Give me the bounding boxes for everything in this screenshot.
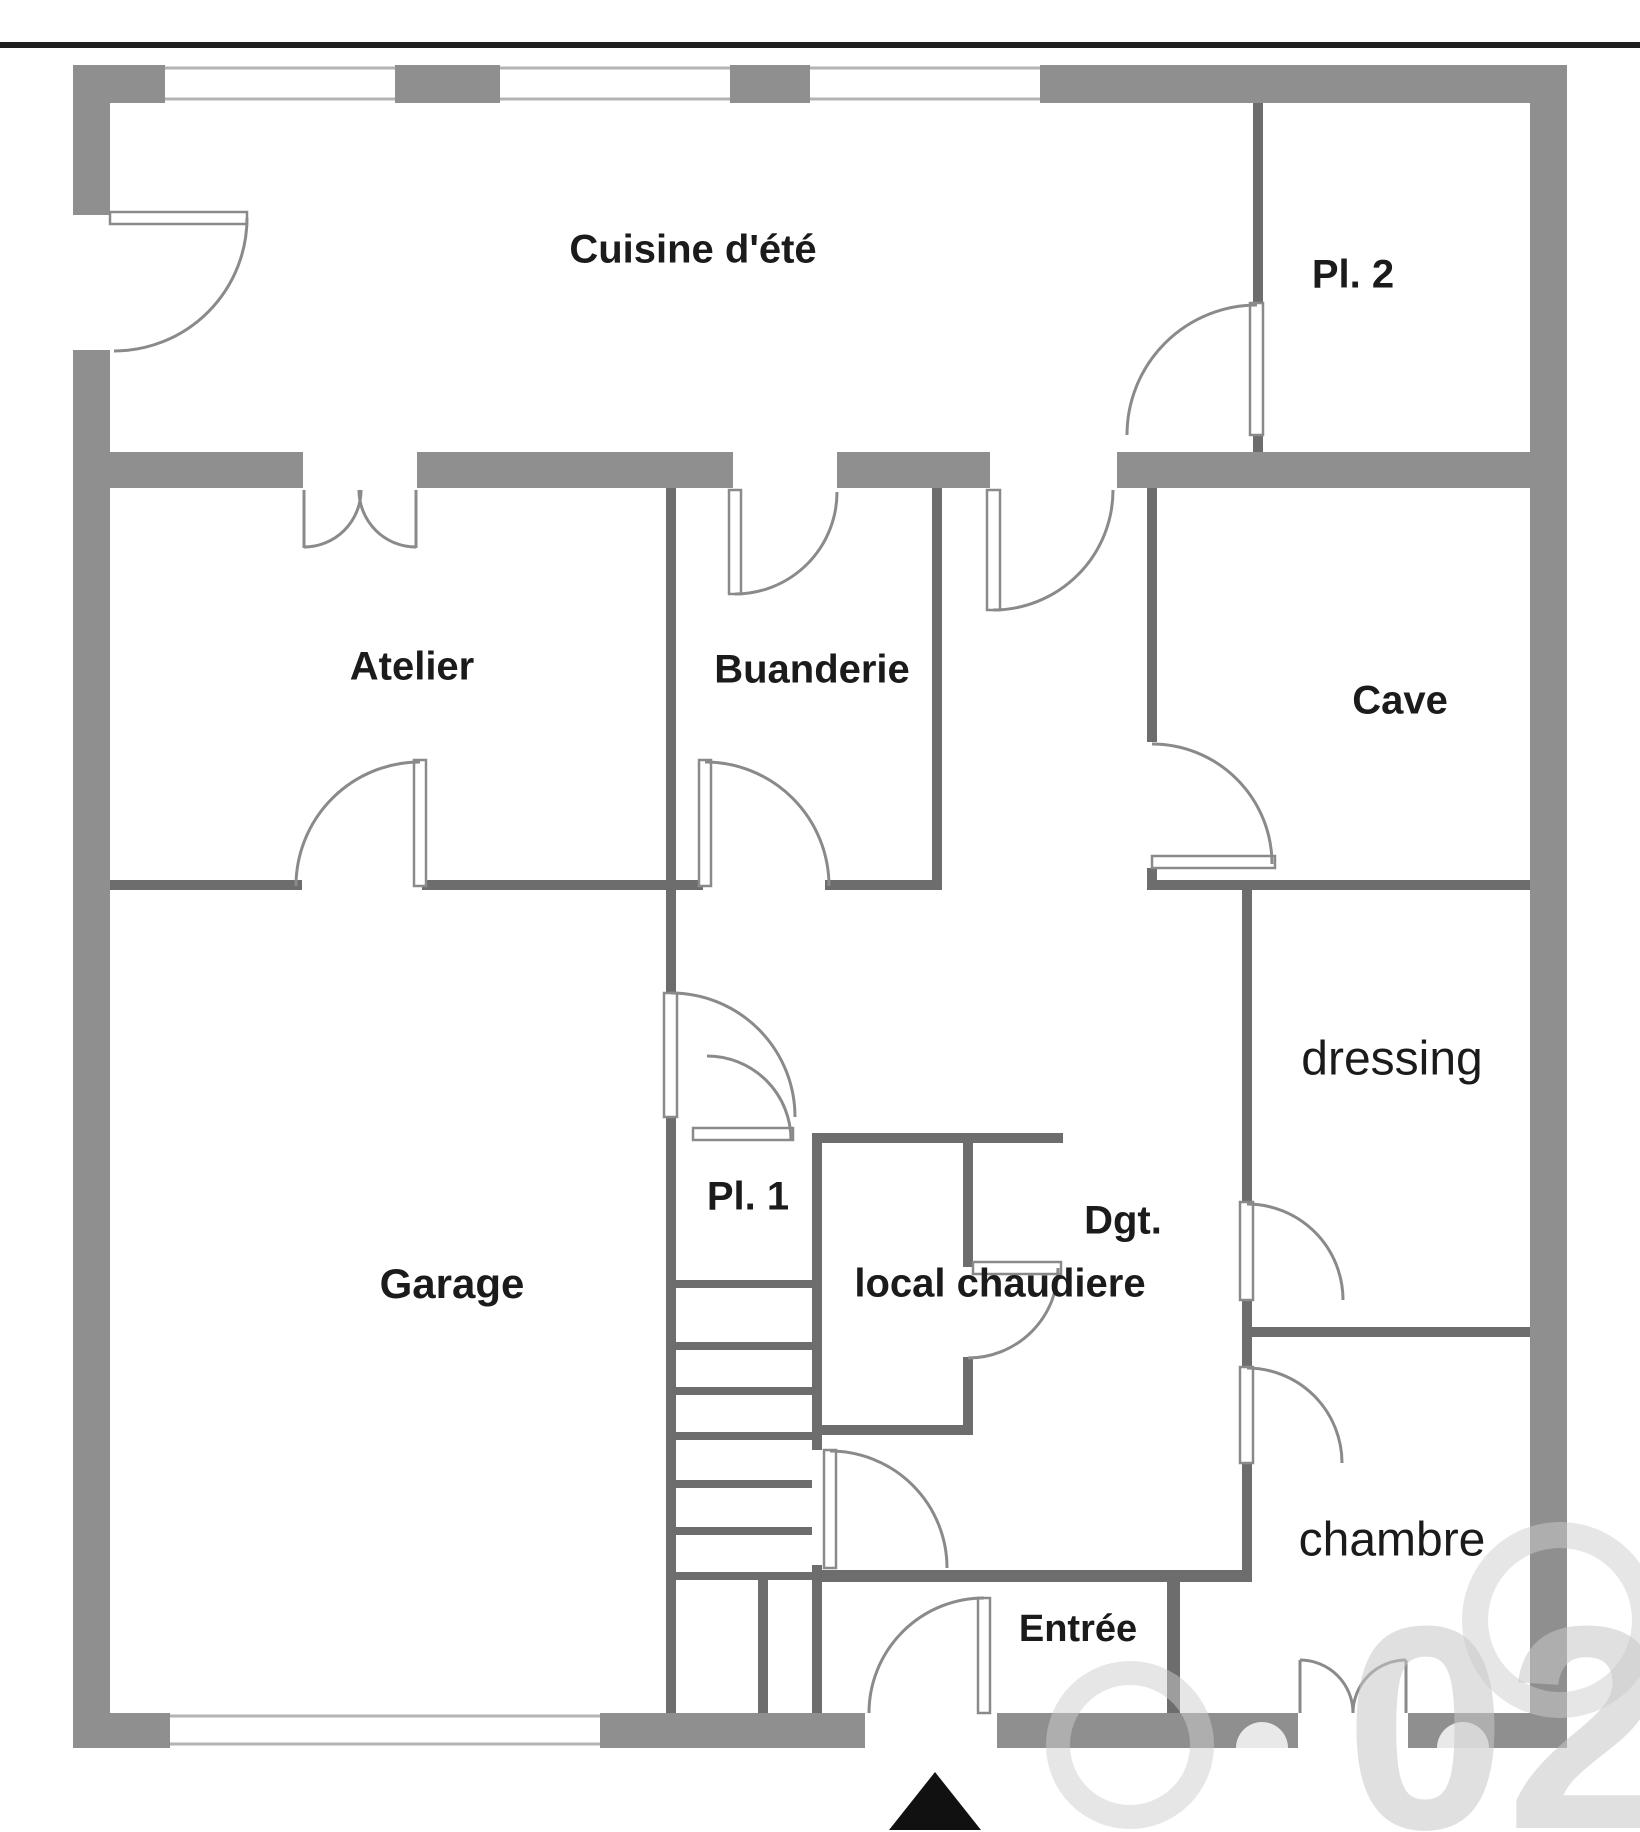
wall bbox=[417, 452, 733, 488]
door-leaf bbox=[987, 490, 1000, 610]
room-label-entree: Entrée bbox=[1019, 1608, 1137, 1650]
watermark-text: 02 bbox=[1345, 1566, 1640, 1832]
room-label-dressing: dressing bbox=[1301, 1033, 1482, 1086]
stair-tread bbox=[676, 1432, 812, 1440]
wall bbox=[812, 1582, 822, 1713]
wall bbox=[822, 1570, 1252, 1582]
cuisine-lower-wall bbox=[110, 452, 1530, 488]
wall bbox=[1530, 65, 1567, 1748]
wall bbox=[837, 452, 990, 488]
room-label-chambre: chambre bbox=[1299, 1514, 1486, 1567]
wall bbox=[110, 452, 303, 488]
window bbox=[165, 65, 395, 103]
door-leaf bbox=[699, 760, 711, 886]
wall bbox=[1242, 1463, 1252, 1580]
wall bbox=[1253, 103, 1263, 303]
door-arc bbox=[869, 1598, 984, 1713]
page-top-rule bbox=[0, 42, 1640, 48]
wall bbox=[963, 1357, 973, 1427]
wall bbox=[73, 350, 110, 1748]
door-opening bbox=[73, 215, 110, 350]
window bbox=[500, 65, 730, 103]
door-arc bbox=[114, 218, 247, 351]
wall bbox=[822, 1425, 973, 1435]
wall bbox=[825, 880, 942, 890]
stair-tread bbox=[676, 1480, 812, 1488]
wall bbox=[963, 1143, 973, 1267]
north-arrow-icon bbox=[889, 1772, 981, 1830]
door-leaf bbox=[693, 1128, 793, 1140]
door-leaf bbox=[110, 212, 247, 224]
room-label-pl2: Pl. 2 bbox=[1312, 253, 1394, 297]
wall bbox=[1147, 868, 1157, 880]
door-leaf bbox=[664, 993, 677, 1117]
wall bbox=[73, 1713, 170, 1748]
stair-tread bbox=[676, 1387, 812, 1395]
stair-tread bbox=[676, 1280, 812, 1288]
wall bbox=[932, 488, 942, 880]
doors bbox=[73, 212, 1408, 1752]
wall bbox=[1147, 488, 1157, 742]
room-label-cuisine: Cuisine d'été bbox=[569, 228, 816, 272]
door-leaf bbox=[1240, 1367, 1253, 1463]
wall bbox=[666, 488, 676, 993]
room-label-buanderie: Buanderie bbox=[714, 648, 910, 692]
door-arc bbox=[830, 1451, 947, 1568]
wall bbox=[1040, 65, 1567, 103]
door-arc bbox=[1247, 1204, 1343, 1300]
door-leaf bbox=[414, 760, 426, 886]
door-leaf bbox=[1250, 303, 1263, 435]
interior-walls bbox=[110, 103, 1530, 1713]
door-opening bbox=[865, 1713, 997, 1752]
room-labels: Cuisine d'été Pl. 2 Atelier Buanderie Ca… bbox=[350, 228, 1486, 1650]
wall bbox=[395, 65, 500, 103]
door-arc bbox=[359, 490, 416, 547]
door-leaf bbox=[1240, 1202, 1253, 1300]
wall bbox=[1147, 880, 1530, 890]
wall bbox=[730, 65, 810, 103]
stair-tread bbox=[676, 1527, 812, 1535]
door-leaf bbox=[1152, 856, 1275, 868]
room-label-atelier: Atelier bbox=[350, 645, 475, 689]
wall bbox=[110, 880, 302, 890]
wall bbox=[758, 1580, 768, 1713]
wall bbox=[666, 1117, 676, 1713]
floor-plan-page: 02 Cuisine d'été Pl. 2 Atelier Buanderie… bbox=[0, 0, 1640, 1832]
room-label-garage: Garage bbox=[380, 1260, 525, 1307]
exterior-walls bbox=[73, 65, 1567, 1748]
wall bbox=[812, 1565, 822, 1582]
staircase bbox=[676, 1280, 812, 1580]
door-leaf bbox=[729, 490, 741, 594]
room-label-chaudiere: local chaudiere bbox=[854, 1262, 1145, 1306]
stair-tread bbox=[676, 1572, 812, 1580]
wall bbox=[1242, 890, 1252, 1202]
room-label-dgt: Dgt. bbox=[1084, 1199, 1162, 1243]
wall bbox=[822, 1133, 1063, 1143]
door-arc bbox=[735, 492, 837, 594]
door-arc bbox=[1152, 744, 1272, 864]
wall bbox=[812, 1133, 822, 1450]
wall bbox=[73, 65, 110, 215]
room-label-pl1: Pl. 1 bbox=[707, 1175, 789, 1219]
wall bbox=[1242, 1327, 1530, 1337]
door-arc bbox=[993, 490, 1113, 610]
door-arc bbox=[671, 993, 795, 1117]
wall bbox=[1253, 435, 1263, 452]
door-arc bbox=[1127, 305, 1257, 435]
room-label-cave: Cave bbox=[1352, 679, 1448, 723]
door-arc bbox=[705, 762, 829, 886]
wall bbox=[422, 880, 666, 890]
stair-tread bbox=[676, 1342, 812, 1350]
wall bbox=[600, 1713, 865, 1748]
window bbox=[810, 65, 1040, 103]
floor-plan-drawing: 02 Cuisine d'été Pl. 2 Atelier Buanderie… bbox=[0, 0, 1640, 1832]
door-leaf bbox=[978, 1598, 990, 1713]
garage-door-opening bbox=[170, 1713, 600, 1748]
door-leaf bbox=[824, 1450, 836, 1568]
door-arc bbox=[304, 490, 361, 547]
windows bbox=[165, 65, 1040, 103]
door-arc bbox=[296, 762, 420, 886]
wall bbox=[1117, 452, 1530, 488]
door-arc bbox=[1247, 1368, 1342, 1463]
